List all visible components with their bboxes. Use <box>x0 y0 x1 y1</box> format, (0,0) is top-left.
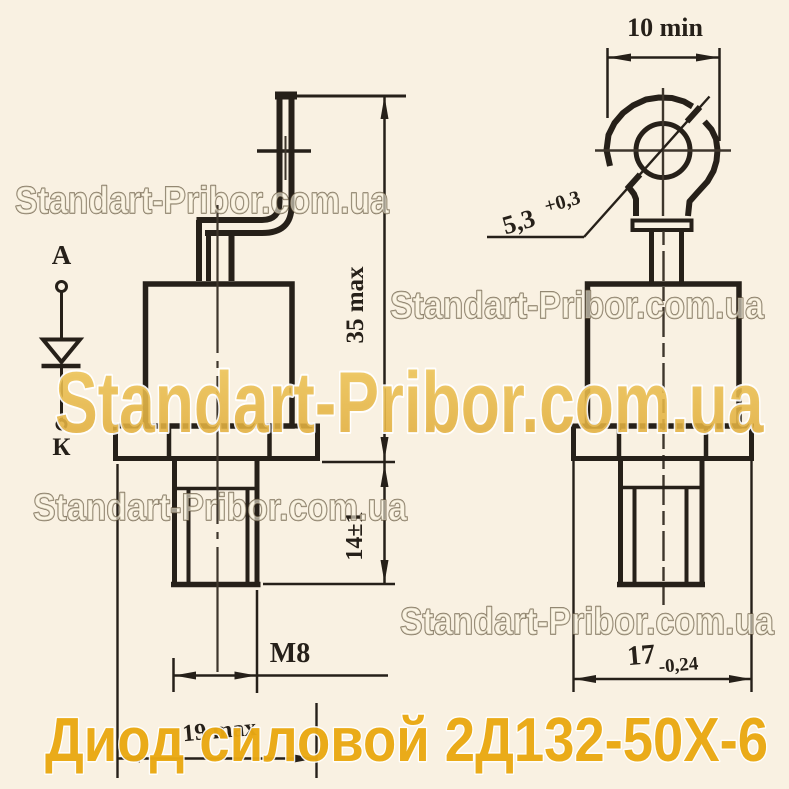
svg-text:35 max: 35 max <box>342 266 369 344</box>
svg-text:Standart-Pribor.com.ua: Standart-Pribor.com.ua <box>15 178 390 221</box>
svg-text:Standart-Pribor.com.ua: Standart-Pribor.com.ua <box>55 355 764 451</box>
svg-text:-0,24: -0,24 <box>658 653 700 677</box>
svg-text:A: A <box>52 240 72 270</box>
svg-text:5,3: 5,3 <box>499 203 538 240</box>
svg-text:Standart-Pribor.com.ua: Standart-Pribor.com.ua <box>390 283 765 326</box>
svg-text:Standart-Pribor.com.ua: Standart-Pribor.com.ua <box>400 599 775 642</box>
svg-text:Standart-Pribor.com.ua: Standart-Pribor.com.ua <box>33 485 408 528</box>
svg-text:M8: M8 <box>270 638 310 669</box>
svg-text:17: 17 <box>626 639 657 672</box>
svg-text:+0,3: +0,3 <box>542 187 583 218</box>
svg-text:Диод силовой 2Д132-50Х-6: Диод силовой 2Д132-50Х-6 <box>45 706 768 775</box>
svg-text:10 min: 10 min <box>627 13 703 42</box>
